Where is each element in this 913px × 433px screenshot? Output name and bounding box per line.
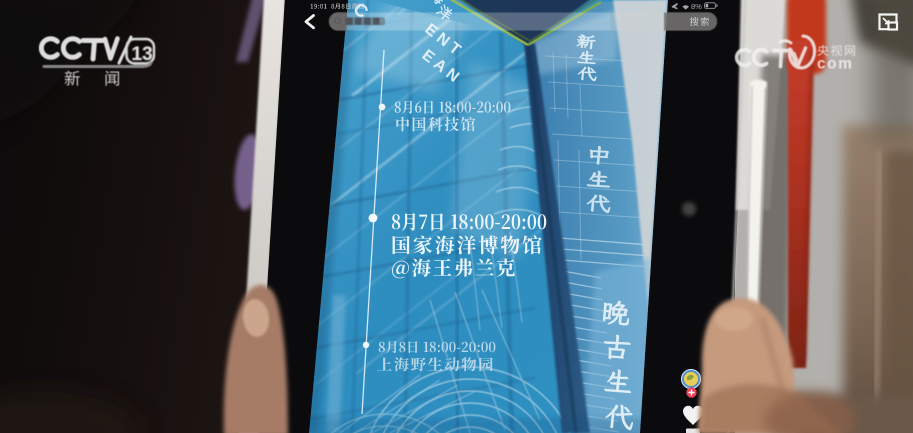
svg-text:com: com — [817, 56, 853, 73]
svg-text:13: 13 — [132, 44, 153, 65]
svg-text:8%: 8% — [691, 2, 702, 11]
